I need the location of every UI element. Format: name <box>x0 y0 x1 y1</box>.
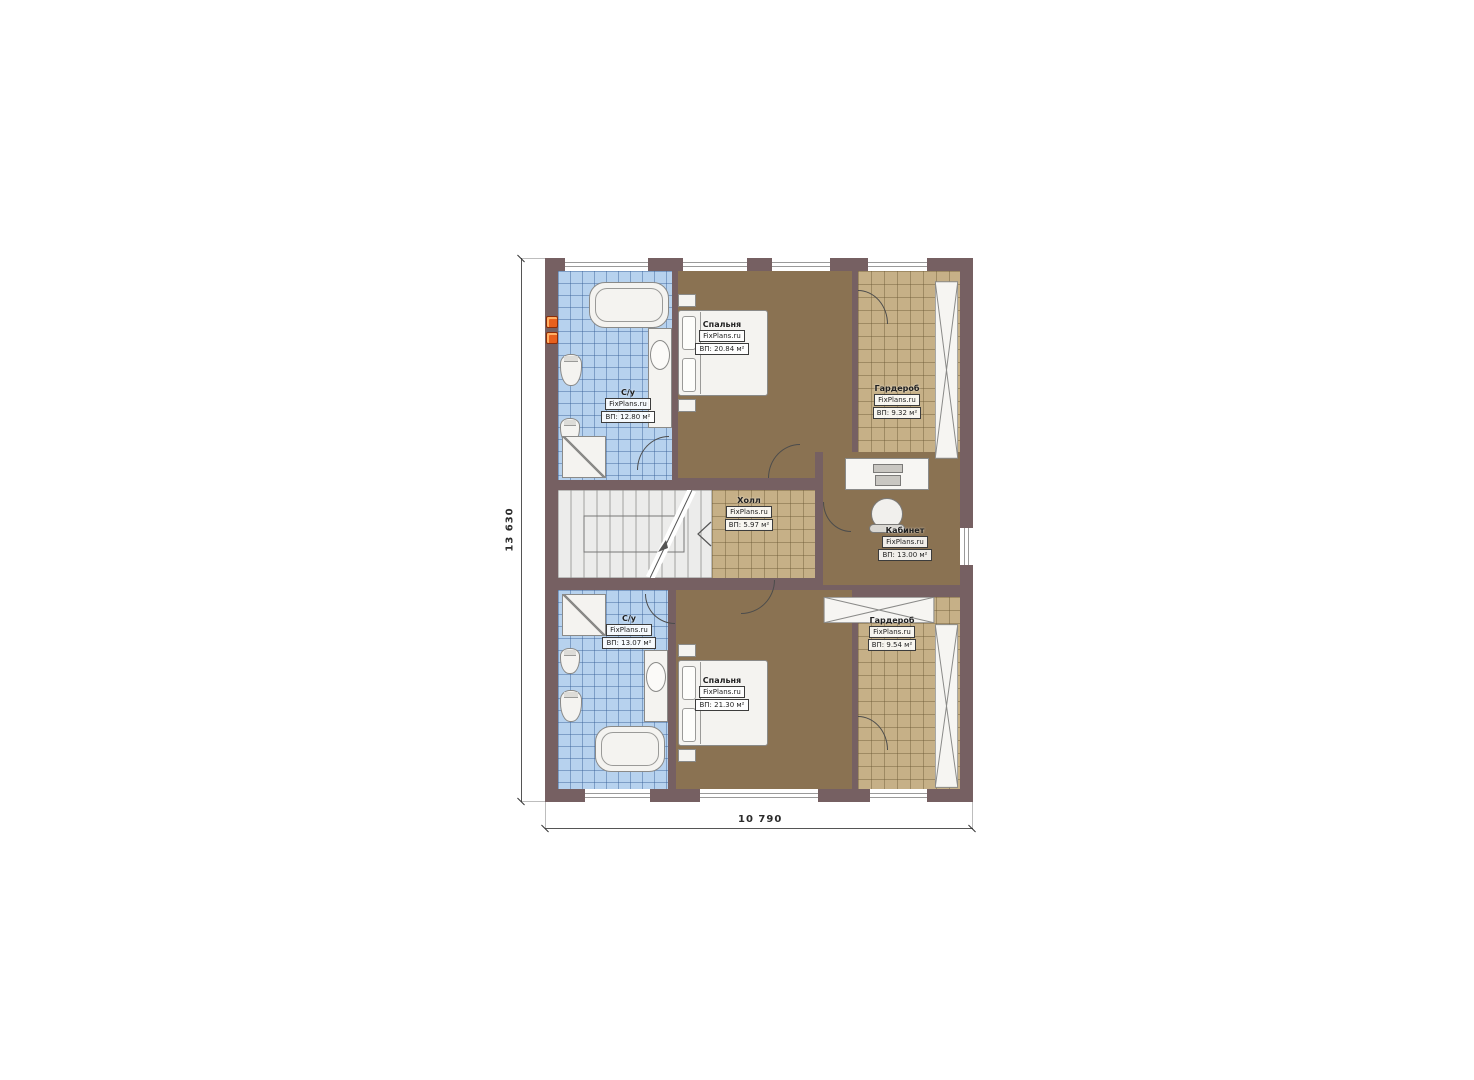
room-label-bedroom-bottom: Спальня FixPlans.ru ВП: 21.30 м² <box>678 676 766 711</box>
room-name: Гардероб <box>875 384 920 393</box>
floor-plan: С/у FixPlans.ru ВП: 12.80 м² Спальня Fix… <box>545 258 973 802</box>
monitor-icon <box>873 464 903 473</box>
extension-line <box>521 801 545 802</box>
room-label-hall: Холл FixPlans.ru ВП: 5.97 м² <box>705 496 793 531</box>
extension-line <box>521 258 545 259</box>
nightstand <box>678 749 696 762</box>
heater-cell <box>546 332 558 344</box>
room-name: Кабинет <box>886 526 925 535</box>
dimension-width-label: 10 790 <box>738 814 782 825</box>
room-label-wardrobe-top: Гардероб FixPlans.ru ВП: 9.32 м² <box>853 384 941 419</box>
room-label-wardrobe-bottom: Гардероб FixPlans.ru ВП: 9.54 м² <box>848 616 936 651</box>
heater-icon <box>546 316 558 344</box>
room-brand: FixPlans.ru <box>606 624 652 636</box>
bathtub <box>589 282 669 328</box>
room-area: ВП: 21.30 м² <box>695 699 748 711</box>
window <box>700 789 818 802</box>
room-brand: FixPlans.ru <box>699 686 745 698</box>
keyboard-icon <box>875 475 901 486</box>
room-brand: FixPlans.ru <box>874 394 920 406</box>
room-area: ВП: 9.54 м² <box>868 639 917 651</box>
pillow <box>682 358 696 392</box>
room-area: ВП: 20.84 м² <box>695 343 748 355</box>
extension-line <box>545 802 546 828</box>
room-label-bathroom-bottom: С/у FixPlans.ru ВП: 13.07 м² <box>585 614 673 649</box>
nightstand <box>678 399 696 412</box>
room-brand: FixPlans.ru <box>605 398 651 410</box>
room-brand: FixPlans.ru <box>726 506 772 518</box>
window <box>772 258 830 271</box>
room-label-bathroom-top: С/у FixPlans.ru ВП: 12.80 м² <box>584 388 672 423</box>
room-brand: FixPlans.ru <box>882 536 928 548</box>
room-label-office: Кабинет FixPlans.ru ВП: 13.00 м² <box>861 526 949 561</box>
extension-line <box>972 802 973 828</box>
sink <box>650 340 670 370</box>
shower <box>562 436 606 478</box>
window <box>868 258 927 271</box>
window <box>870 789 927 802</box>
nightstand <box>678 644 696 657</box>
room-area: ВП: 13.07 м² <box>602 637 655 649</box>
room-brand: FixPlans.ru <box>699 330 745 342</box>
room-area: ВП: 13.00 м² <box>878 549 931 561</box>
room-area: ВП: 9.32 м² <box>873 407 922 419</box>
nightstand <box>678 294 696 307</box>
room-name: Спальня <box>703 676 741 685</box>
staircase <box>558 490 712 578</box>
room-name: С/у <box>622 614 636 623</box>
window <box>565 258 648 271</box>
room-brand: FixPlans.ru <box>869 626 915 638</box>
heater-cell <box>546 316 558 328</box>
window <box>683 258 747 271</box>
dimension-line-horizontal <box>545 828 973 829</box>
bathtub <box>595 726 665 772</box>
dimension-height-label: 13 630 <box>505 507 516 551</box>
room-area: ВП: 12.80 м² <box>601 411 654 423</box>
room-name: Холл <box>737 496 760 505</box>
window <box>960 528 973 565</box>
closet-x-unit <box>935 623 958 789</box>
closet-x-unit <box>935 280 958 460</box>
room-name: Спальня <box>703 320 741 329</box>
room-area: ВП: 5.97 м² <box>725 519 774 531</box>
room-label-bedroom-top: Спальня FixPlans.ru ВП: 20.84 м² <box>678 320 766 355</box>
window <box>585 789 650 802</box>
dimension-line-vertical <box>521 258 522 802</box>
room-name: С/у <box>621 388 635 397</box>
floor-plan-canvas: 13 630 10 790 <box>0 0 1474 1080</box>
sink <box>646 662 666 692</box>
pillow <box>682 708 696 742</box>
room-name: Гардероб <box>870 616 915 625</box>
